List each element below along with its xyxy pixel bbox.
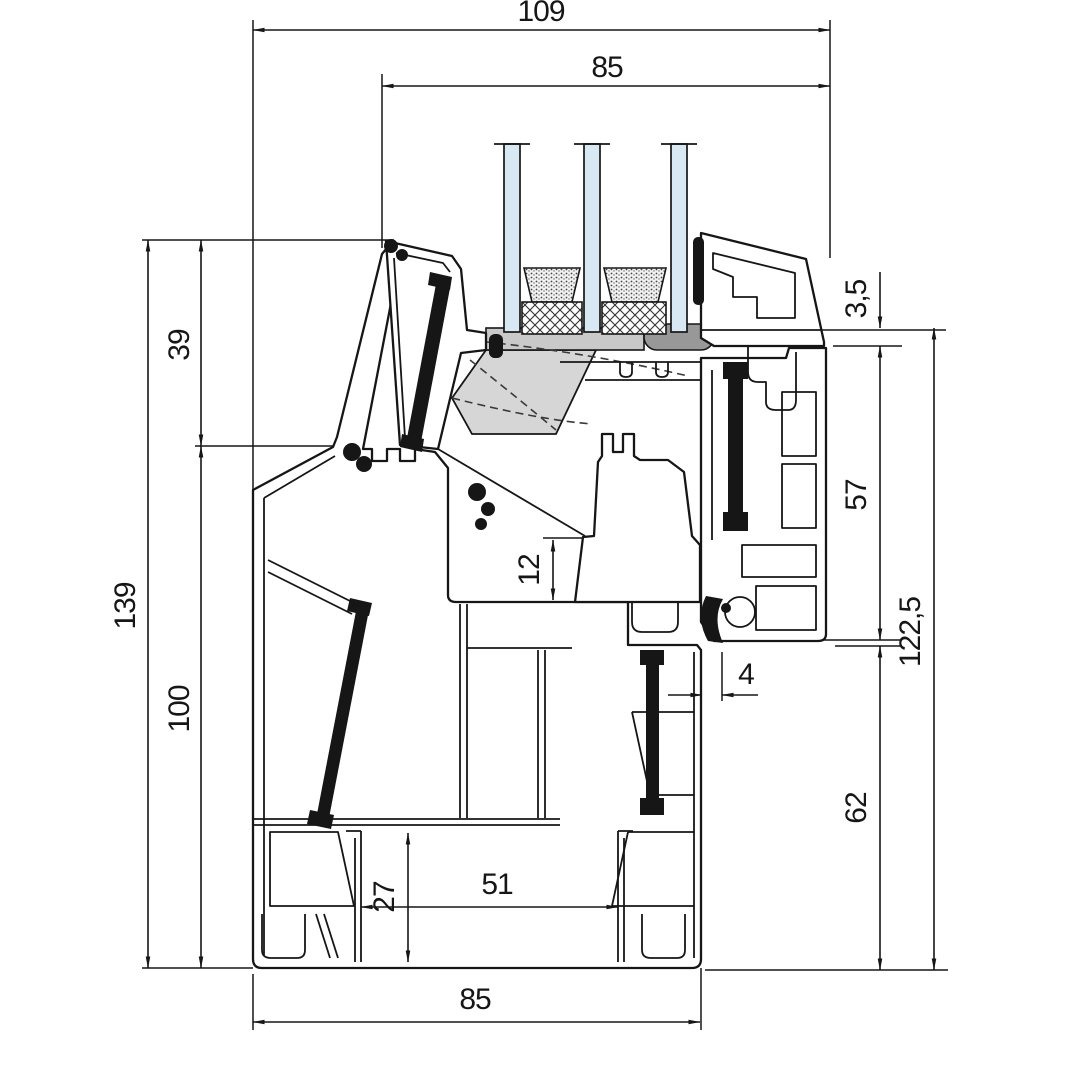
- dim-right-lower: 62: [840, 792, 873, 824]
- gasket-cluster-left: [343, 443, 361, 461]
- dim-right-total: 122,5: [894, 597, 927, 667]
- dim-bottom-total: 85: [459, 983, 491, 1016]
- technical-drawing-canvas: 109 85 39 139 100 3,5 57 122,5 62 12 4 2…: [0, 0, 1080, 1080]
- sealant-2: [602, 302, 666, 334]
- glass-pane-2: [584, 144, 600, 332]
- spacer-bar-1: [524, 268, 580, 302]
- dim-middle-offset: 4: [738, 658, 754, 691]
- center-seal-hump: [575, 434, 700, 602]
- frame-back-upstand: [701, 348, 826, 643]
- reinforcement-bar-upstand: [728, 378, 743, 512]
- dim-top-total: 109: [517, 0, 564, 28]
- dim-top-sash: 85: [591, 51, 623, 84]
- glass-pane-1: [504, 144, 520, 332]
- window-profile-cross-section: 109 85 39 139 100 3,5 57 122,5 62 12 4 2…: [0, 0, 1080, 1080]
- dim-right-upper: 57: [840, 479, 873, 511]
- dim-right-bar: 3,5: [840, 279, 873, 318]
- dim-bottom-chamber-height: 27: [368, 881, 401, 913]
- gasket-cluster-middle: [468, 483, 486, 501]
- glazing-unit: [494, 144, 697, 334]
- spacer-bar-2: [604, 268, 666, 302]
- dim-middle-gap: 12: [513, 554, 546, 586]
- reinforcement-bar-sill: [646, 662, 659, 798]
- sealant-1: [522, 302, 582, 334]
- dim-bottom-chamber-width: 51: [481, 868, 513, 901]
- dim-left-total: 139: [109, 582, 142, 629]
- gasket-corner-top: [384, 239, 398, 253]
- glass-pane-3: [671, 144, 687, 332]
- dim-left-rebate: 39: [163, 329, 196, 361]
- sash-right-outline: [701, 233, 824, 346]
- dim-left-frame: 100: [163, 685, 196, 732]
- glass-gasket-right: [693, 237, 704, 305]
